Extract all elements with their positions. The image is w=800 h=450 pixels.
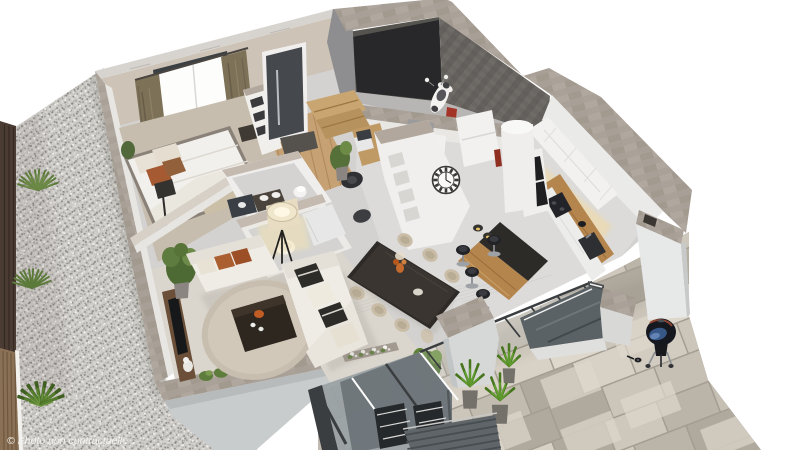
svg-text:© Photo non contractuelle: © Photo non contractuelle [7,435,128,447]
